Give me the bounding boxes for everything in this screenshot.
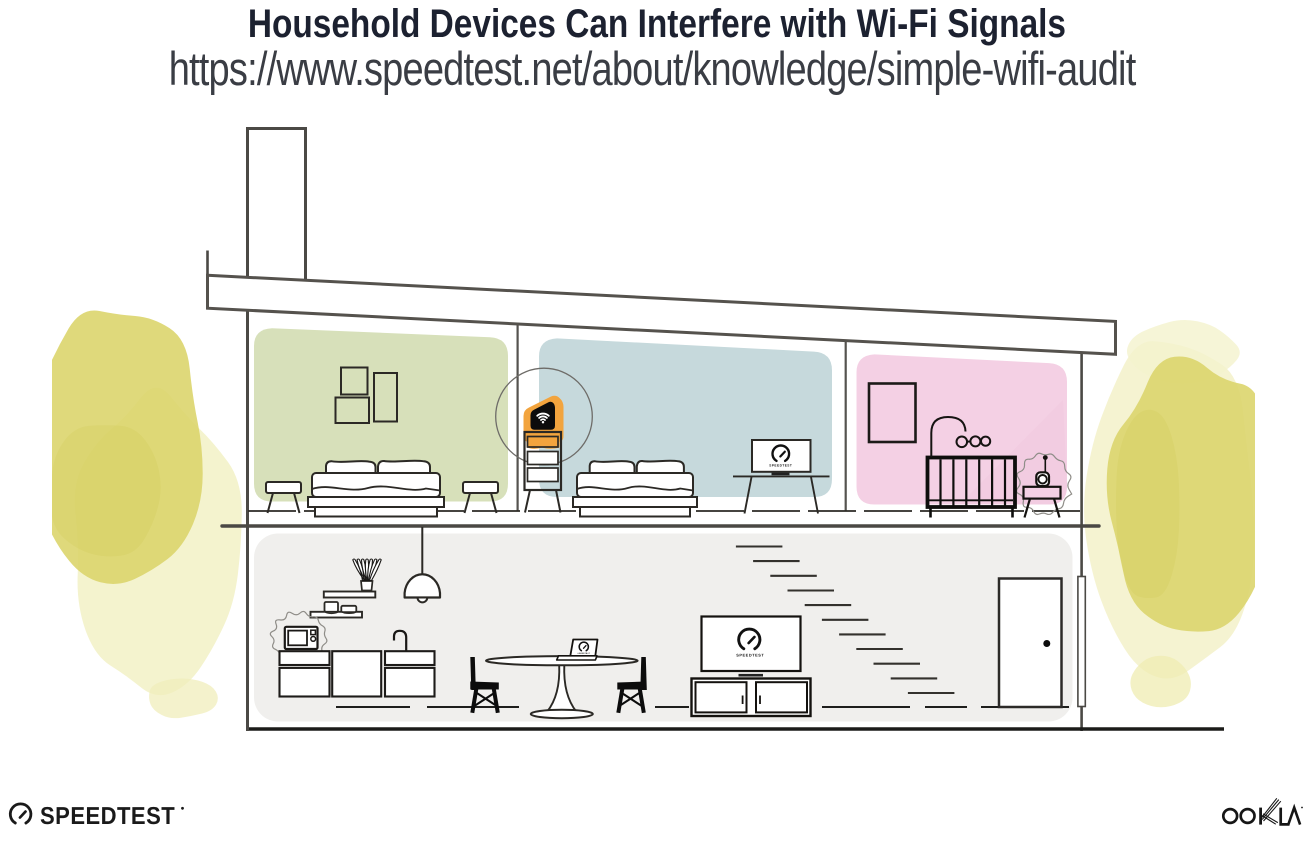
svg-text:SPEEDTEST: SPEEDTEST: [769, 464, 792, 468]
svg-text:SPEEDTEST: SPEEDTEST: [578, 652, 591, 655]
svg-text:SPEEDTEST: SPEEDTEST: [736, 653, 764, 658]
svg-text:SPEEDTEST: SPEEDTEST: [40, 803, 175, 830]
